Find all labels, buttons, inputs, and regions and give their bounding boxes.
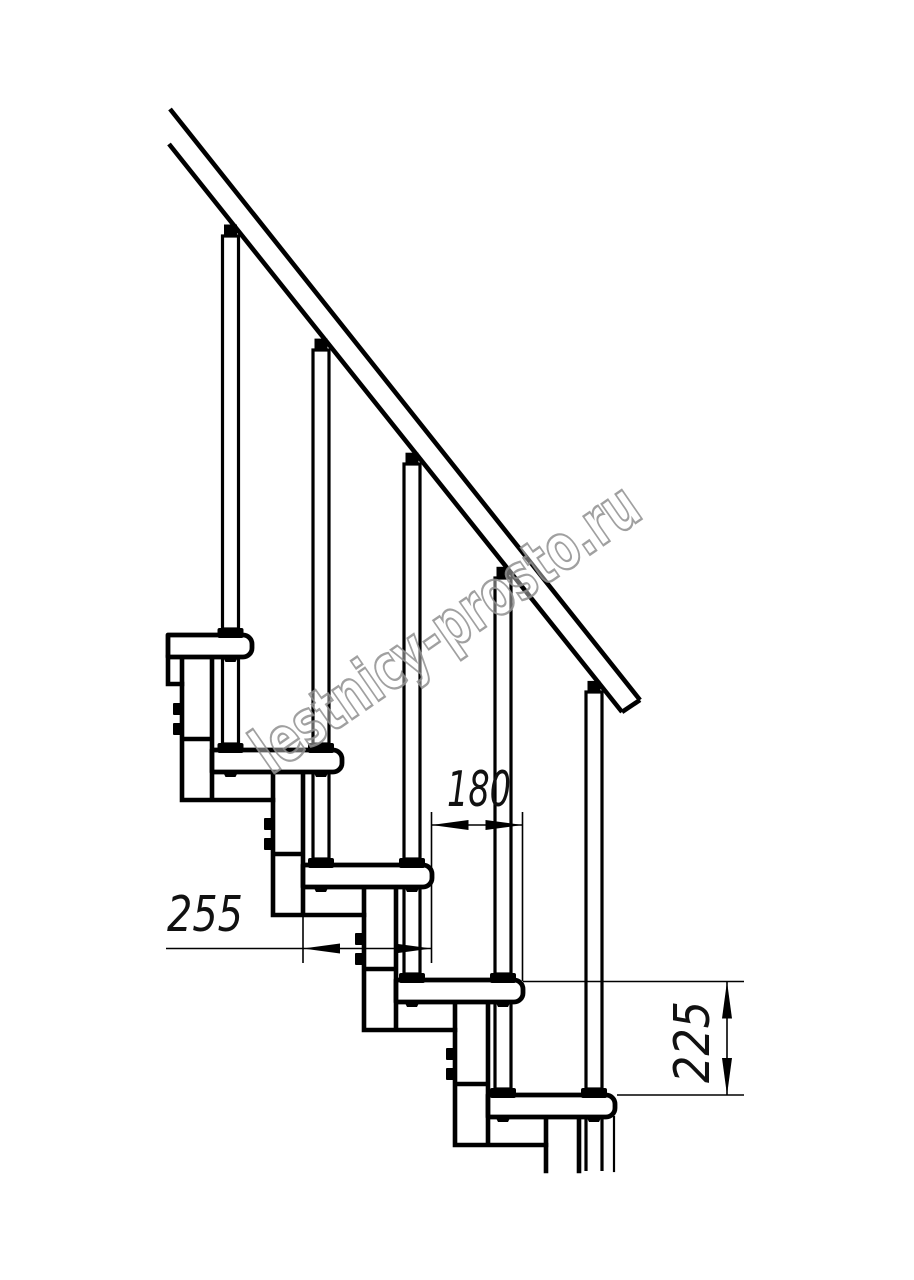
tread	[488, 1095, 615, 1117]
bolt	[264, 818, 273, 830]
dimension-180-label: 180	[447, 761, 511, 818]
baluster-support	[586, 1115, 602, 1171]
arrowhead-down-icon	[722, 1058, 732, 1095]
tread	[168, 635, 252, 657]
baluster-foot	[308, 858, 334, 868]
bolt	[355, 933, 364, 945]
nut	[404, 1001, 420, 1007]
baluster-foot	[218, 628, 244, 638]
baluster-foot	[490, 973, 516, 983]
nut	[313, 886, 329, 892]
nut	[223, 771, 239, 777]
nut	[495, 1116, 511, 1122]
dimension-255-label: 255	[167, 886, 243, 943]
rail-connector	[406, 453, 419, 465]
baluster	[223, 236, 239, 629]
baluster-foot	[399, 973, 425, 983]
baluster	[586, 692, 602, 1089]
bolt	[446, 1068, 455, 1080]
baluster-support	[223, 655, 239, 744]
tread	[303, 865, 432, 887]
arrowhead-up-icon	[722, 982, 732, 1019]
bolt	[173, 703, 182, 715]
rail-connector	[315, 339, 328, 351]
arrowhead-left-icon	[432, 820, 469, 830]
baluster-foot	[490, 1088, 516, 1098]
baluster-support	[404, 885, 420, 974]
baluster-foot	[581, 1088, 607, 1098]
baluster-foot	[218, 743, 244, 753]
rail-connector	[224, 225, 237, 237]
bolt	[264, 838, 273, 850]
nut	[586, 1116, 602, 1122]
baluster-foot	[399, 858, 425, 868]
rail-connector	[588, 681, 601, 693]
dimension-225: 225	[523, 982, 744, 1096]
bolt	[355, 953, 364, 965]
staircase-technical-drawing: 255 180 225 lestnicy-prosto.ru	[0, 0, 914, 1280]
bolt	[173, 723, 182, 735]
baluster-support	[495, 1000, 511, 1089]
dimension-225-label: 225	[664, 1001, 721, 1083]
tread	[396, 980, 523, 1002]
module-box	[546, 1117, 579, 1171]
arrowhead-left-icon	[303, 944, 340, 954]
baluster-support	[313, 770, 329, 859]
bolt	[446, 1048, 455, 1060]
dimension-255: 255	[166, 886, 432, 963]
